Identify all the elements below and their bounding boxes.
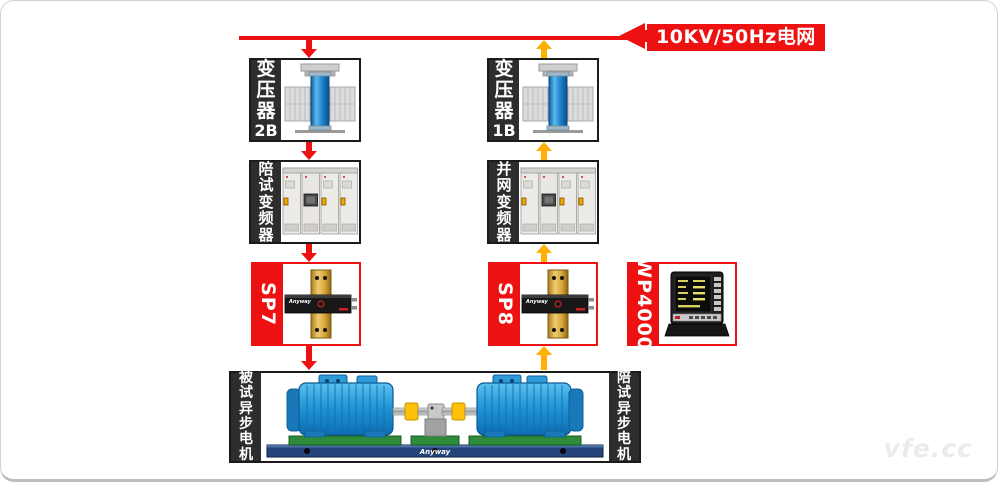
inverter-test-label: 陪试变频器: [251, 162, 281, 242]
box-wp4000: WP4000: [627, 262, 737, 346]
flow-arrow-up-2: [536, 142, 552, 160]
motor-left-label: 被试异步电机: [231, 373, 261, 461]
watermark: vfe.cc: [884, 434, 973, 463]
flow-arrow-up-1: [536, 40, 552, 58]
transformer-1b-label: 变压器 1B: [489, 60, 519, 140]
sp7-image: Anyway: [283, 264, 359, 344]
wp4000-label: WP4000: [629, 264, 659, 344]
inverter-grid-image: [519, 162, 597, 242]
box-transformer-1b: 变压器 1B: [487, 58, 599, 142]
flow-arrow-down-1: [301, 40, 317, 58]
motor-left: [287, 375, 405, 437]
motor-right-label: 陪试异步电机: [609, 373, 639, 461]
transformer-2b-image: [281, 60, 359, 140]
box-sp8: SP8 Anyway: [488, 262, 598, 346]
bench-brand-text: Anyway: [419, 448, 451, 456]
flow-arrow-up-4: [536, 346, 552, 370]
box-inverter-test: 陪试变频器: [249, 160, 361, 244]
shaft-coupling-sensor: [405, 403, 465, 436]
flow-arrow-down-2: [301, 142, 317, 160]
sp7-label: SP7: [253, 264, 283, 344]
box-inverter-grid: 并网变频器: [487, 160, 599, 244]
sp8-image: Anyway: [520, 264, 596, 344]
flow-arrow-down-3: [301, 244, 317, 262]
box-sp7: SP7 Anyway: [251, 262, 361, 346]
inverter-grid-label: 并网变频器: [489, 162, 519, 242]
inverter-test-image: [281, 162, 359, 242]
grid-bus-line: [239, 36, 627, 40]
flow-arrow-down-4: [301, 346, 317, 370]
box-transformer-2b: 变压器 2B: [249, 58, 361, 142]
wp4000-image: [659, 264, 735, 344]
box-motor-bench: 被试异步电机 Anyway: [229, 371, 641, 463]
motor-bench-image: Anyway: [261, 373, 609, 461]
transformer-1b-image: [519, 60, 597, 140]
transformer-2b-label: 变压器 2B: [251, 60, 281, 140]
sp8-brand-text: Anyway: [525, 299, 549, 305]
flow-arrow-up-3: [536, 244, 552, 262]
sp7-brand-text: Anyway: [288, 299, 312, 305]
motor-right: [465, 375, 583, 437]
diagram-canvas: 10KV/50Hz电网 变压器 2B: [0, 0, 998, 482]
sp8-label: SP8: [490, 264, 520, 344]
grid-label: 10KV/50Hz电网: [647, 24, 825, 51]
